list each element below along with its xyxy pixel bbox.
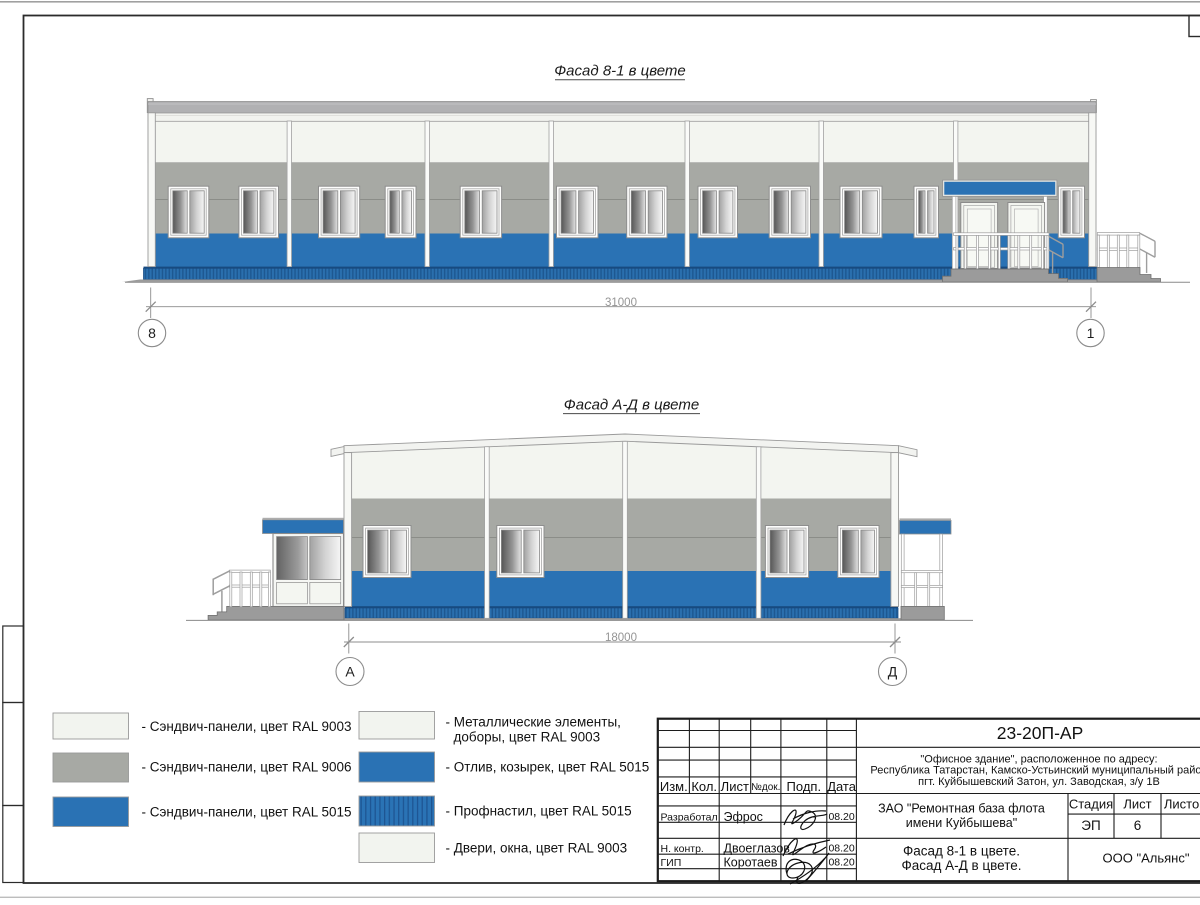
svg-text:Республика Татарстан, Камско-У: Республика Татарстан, Камско-Устьинский …	[870, 765, 1200, 777]
svg-text:- Профнастил, цвет RAL 5015: - Профнастил, цвет RAL 5015	[446, 804, 632, 819]
svg-text:- Металлические элементы,: - Металлические элементы,	[446, 715, 621, 730]
svg-text:18000: 18000	[605, 632, 637, 644]
svg-text:Фасад 8-1 в цвете: Фасад 8-1 в цвете	[554, 62, 686, 79]
svg-text:Стадия: Стадия	[1069, 797, 1113, 812]
svg-text:6: 6	[1134, 818, 1142, 833]
svg-text:имени Куйбышева": имени Куйбышева"	[906, 816, 1017, 830]
svg-text:Фасад А-Д в цвете.: Фасад А-Д в цвете.	[901, 858, 1021, 873]
svg-text:- Сэндвич-панели, цвет RAL 900: - Сэндвич-панели, цвет RAL 9006	[142, 760, 352, 775]
svg-text:А: А	[345, 664, 355, 680]
svg-text:Дата: Дата	[827, 779, 857, 794]
svg-text:Д: Д	[888, 664, 898, 680]
svg-text:Кол.: Кол.	[691, 779, 717, 794]
svg-text:пгт. Куйбышевский Затон, ул. З: пгт. Куйбышевский Затон, ул. Заводская, …	[918, 776, 1160, 788]
svg-text:1: 1	[1087, 325, 1095, 341]
svg-text:доборы, цвет RAL 9003: доборы, цвет RAL 9003	[454, 730, 601, 745]
svg-text:- Двери, окна, цвет RAL 9003: - Двери, окна, цвет RAL 9003	[446, 841, 628, 856]
svg-text:- Сэндвич-панели, цвет RAL 501: - Сэндвич-панели, цвет RAL 5015	[142, 805, 352, 820]
svg-text:Коротаев: Коротаев	[724, 856, 778, 870]
svg-text:- Сэндвич-панели, цвет RAL 900: - Сэндвич-панели, цвет RAL 9003	[142, 719, 352, 734]
svg-text:ГИП: ГИП	[661, 857, 682, 869]
svg-text:Фасад 8-1 в цвете.: Фасад 8-1 в цвете.	[903, 843, 1020, 858]
svg-text:Листов: Листов	[1164, 797, 1200, 812]
svg-text:Разработал: Разработал	[661, 811, 718, 823]
svg-text:08.20: 08.20	[828, 842, 854, 854]
svg-text:№док.: №док.	[751, 782, 780, 793]
svg-text:08.20: 08.20	[828, 811, 854, 823]
svg-text:ЭП: ЭП	[1081, 818, 1100, 833]
svg-text:Подп.: Подп.	[787, 779, 822, 794]
svg-text:23-20П-АР: 23-20П-АР	[997, 723, 1084, 743]
svg-text:Фасад А-Д в цвете: Фасад А-Д в цвете	[564, 397, 699, 414]
svg-text:31000: 31000	[605, 297, 637, 309]
svg-text:8: 8	[148, 325, 156, 341]
svg-text:Двоеглазов: Двоеглазов	[724, 841, 791, 855]
svg-text:Н. контр.: Н. контр.	[661, 843, 704, 855]
svg-text:Изм.: Изм.	[660, 779, 688, 794]
svg-text:08.20: 08.20	[828, 857, 854, 869]
svg-text:Лист: Лист	[1123, 797, 1151, 812]
svg-text:- Отлив, козырек, цвет RAL 501: - Отлив, козырек, цвет RAL 5015	[446, 760, 650, 775]
svg-text:Лист: Лист	[721, 779, 749, 794]
svg-text:ООО "Альянс": ООО "Альянс"	[1103, 851, 1190, 866]
svg-text:Эфрос: Эфрос	[724, 810, 763, 824]
svg-text:ЗАО "Ремонтная база флота: ЗАО "Ремонтная база флота	[878, 801, 1045, 815]
